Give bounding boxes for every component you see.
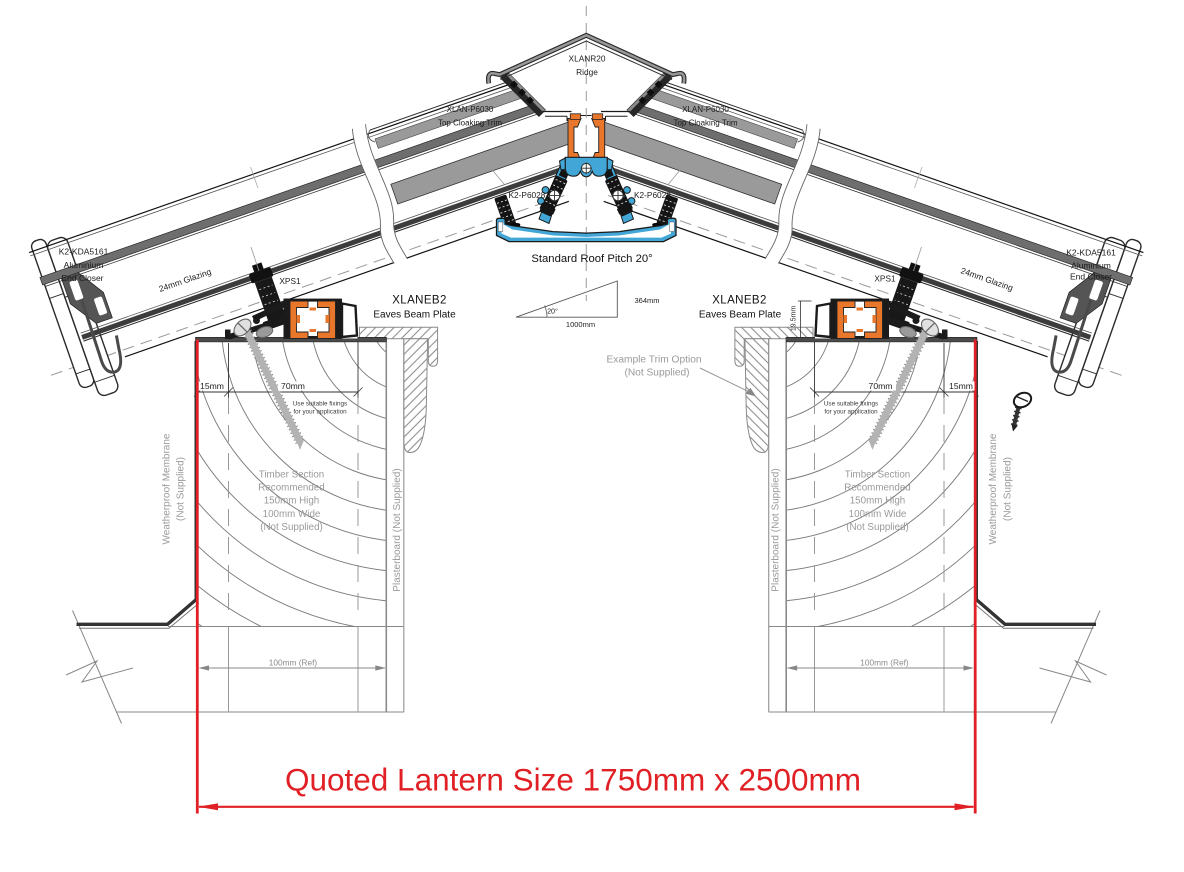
svg-text:XLANEB2: XLANEB2 bbox=[392, 295, 447, 307]
svg-text:Use suitable fixings: Use suitable fixings bbox=[293, 401, 347, 408]
svg-text:K2-P6028: K2-P6028 bbox=[509, 190, 546, 200]
svg-text:Quoted Lantern Size 1750mm x 2: Quoted Lantern Size 1750mm x 2500mm bbox=[285, 762, 861, 798]
svg-text:19.5mm: 19.5mm bbox=[791, 306, 798, 331]
svg-text:Plasterboard (Not Supplied): Plasterboard (Not Supplied) bbox=[392, 468, 403, 591]
svg-text:70mm: 70mm bbox=[281, 381, 305, 391]
svg-text:Timber Section: Timber Section bbox=[259, 470, 325, 481]
svg-text:Top Cloaking Trim: Top Cloaking Trim bbox=[438, 119, 502, 128]
svg-text:K2-KDA5161: K2-KDA5161 bbox=[1066, 248, 1116, 258]
svg-text:150mm High: 150mm High bbox=[264, 496, 320, 507]
svg-text:XLANEB2: XLANEB2 bbox=[712, 295, 767, 307]
svg-text:Standard Roof Pitch 20°: Standard Roof Pitch 20° bbox=[531, 253, 652, 265]
svg-text:Aluminium: Aluminium bbox=[1071, 261, 1111, 271]
svg-text:Weatherproof Membrane: Weatherproof Membrane bbox=[162, 433, 173, 544]
svg-text:Top Cloaking Trim: Top Cloaking Trim bbox=[673, 119, 737, 128]
svg-text:End Closer: End Closer bbox=[1070, 272, 1112, 282]
svg-text:Use suitable fixings: Use suitable fixings bbox=[824, 401, 878, 408]
svg-text:Recommended: Recommended bbox=[844, 483, 910, 494]
svg-text:XPS1: XPS1 bbox=[874, 274, 896, 284]
svg-text:Timber Section: Timber Section bbox=[845, 470, 911, 481]
svg-text:100mm (Ref): 100mm (Ref) bbox=[269, 658, 318, 668]
svg-text:End Closer: End Closer bbox=[61, 273, 103, 283]
svg-text:100mm Wide: 100mm Wide bbox=[263, 509, 321, 520]
svg-text:XLAN-P6030: XLAN-P6030 bbox=[682, 105, 729, 114]
svg-text:K2-P6028: K2-P6028 bbox=[634, 190, 671, 200]
svg-text:Plasterboard (Not Supplied): Plasterboard (Not Supplied) bbox=[771, 468, 782, 591]
svg-text:(Not Supplied): (Not Supplied) bbox=[846, 522, 909, 533]
svg-text:K2-KDA5161: K2-KDA5161 bbox=[59, 247, 109, 257]
svg-text:364mm: 364mm bbox=[635, 296, 660, 305]
svg-text:24mm Glazing: 24mm Glazing bbox=[959, 265, 1014, 293]
svg-text:Aluminium: Aluminium bbox=[64, 260, 104, 270]
svg-text:150mm High: 150mm High bbox=[850, 496, 906, 507]
svg-text:Eaves Beam Plate: Eaves Beam Plate bbox=[373, 310, 456, 321]
svg-text:XPS1: XPS1 bbox=[279, 276, 301, 286]
svg-text:Recommended: Recommended bbox=[258, 483, 324, 494]
svg-text:(Not Supplied): (Not Supplied) bbox=[260, 522, 323, 533]
svg-text:1000mm: 1000mm bbox=[566, 320, 595, 329]
svg-text:20°: 20° bbox=[547, 307, 558, 316]
svg-text:70mm: 70mm bbox=[869, 381, 893, 391]
svg-text:Eaves Beam Plate: Eaves Beam Plate bbox=[699, 310, 782, 321]
svg-text:Weatherproof Membrane: Weatherproof Membrane bbox=[988, 433, 999, 544]
svg-text:15mm: 15mm bbox=[200, 381, 224, 391]
svg-text:XLANR20: XLANR20 bbox=[569, 54, 606, 64]
svg-text:15mm: 15mm bbox=[949, 381, 973, 391]
svg-text:100mm Wide: 100mm Wide bbox=[849, 509, 907, 520]
svg-text:(Not Supplied): (Not Supplied) bbox=[176, 457, 187, 521]
svg-text:for your application: for your application bbox=[293, 408, 347, 415]
svg-text:100mm (Ref): 100mm (Ref) bbox=[860, 658, 909, 668]
svg-text:for your application: for your application bbox=[824, 408, 878, 415]
svg-text:Example Trim Option: Example Trim Option bbox=[606, 355, 701, 366]
svg-text:XLAN-P6030: XLAN-P6030 bbox=[447, 105, 494, 114]
svg-text:(Not Supplied): (Not Supplied) bbox=[1003, 457, 1014, 521]
svg-text:Ridge: Ridge bbox=[576, 67, 598, 77]
svg-text:(Not Supplied): (Not Supplied) bbox=[624, 368, 689, 379]
